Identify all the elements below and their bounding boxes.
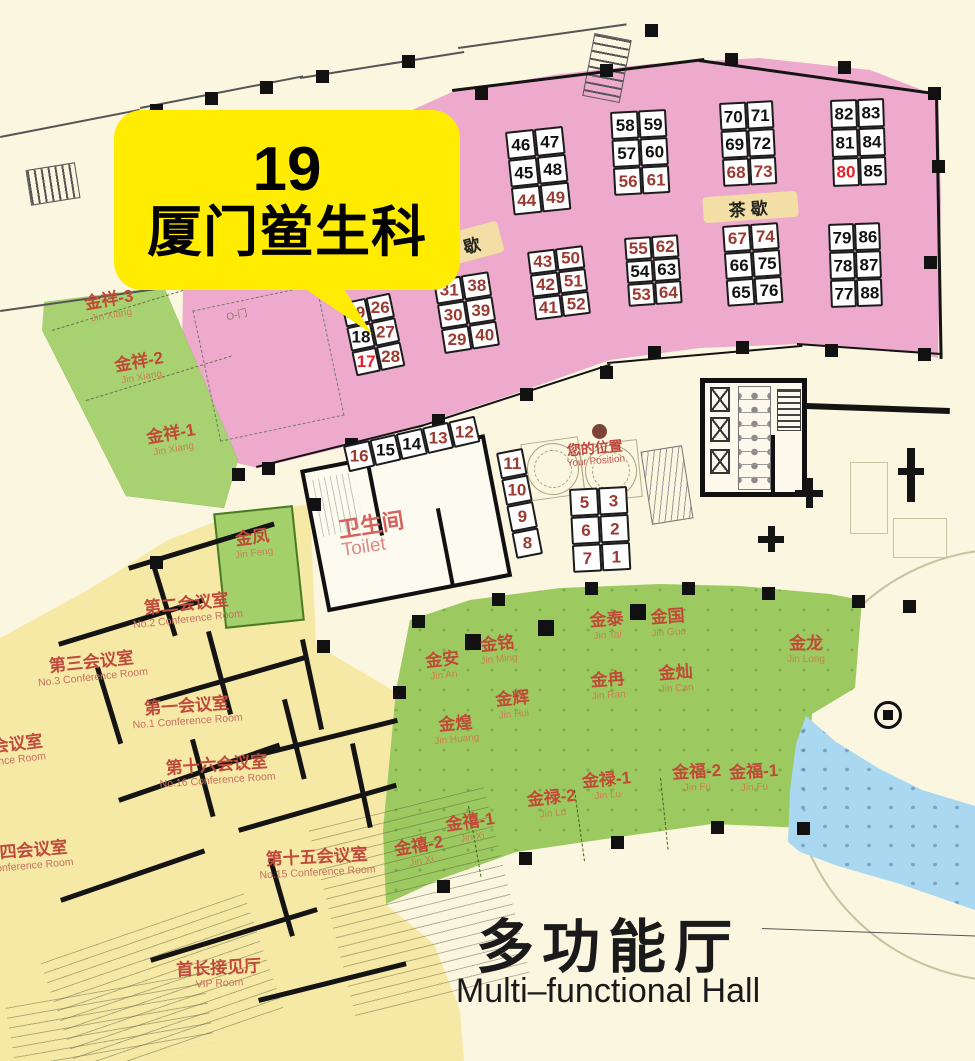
column-marker [711,821,724,834]
wall-segment [607,345,802,364]
callout-exhibitor-name: 厦门鲎生科 [147,202,427,263]
hall-title-en: Multi–functional Hall [456,972,760,1011]
column-marker [317,640,330,653]
booth-2: 2 [599,514,629,543]
room-name-pinyin: Jin Hui [496,707,531,721]
booth-78: 78 [829,251,856,280]
room-label-jin-xiang-1: 金祥-1Jin Xiang [145,421,199,459]
column-marker [611,836,624,849]
column-marker [475,87,488,100]
booth-number: 46 [511,136,530,153]
booth-number: 39 [471,302,490,319]
escalator-icon [640,445,693,525]
room-label-jin-fu-1: 金福-1Jin Fu [729,762,780,794]
booth-number: 3 [608,492,617,509]
room-name-pinyin: Jin Ran [591,689,626,702]
wall-segment [806,403,950,414]
room-name-zh: 金龙 [787,635,825,654]
booth-number: 11 [503,455,521,472]
column-marker [918,348,931,361]
booth-number: 82 [835,106,854,123]
column-marker [648,346,661,359]
column-marker [308,498,321,511]
column-marker [736,341,749,354]
column-marker [402,55,415,68]
elevator-icon [710,449,730,474]
booth-76: 76 [754,276,784,305]
core-wall [771,435,775,495]
elevator-icon [710,417,730,442]
booth-77: 77 [830,279,857,308]
booth-number: 74 [755,228,774,245]
booth-number: 73 [754,162,773,179]
column-marker [538,620,554,636]
booth-number: 15 [376,442,395,459]
column-marker [520,388,533,401]
booth-64: 64 [654,280,683,305]
column-marker [262,462,275,475]
conference-label-onference-room: 四会议室onference Room [0,837,74,875]
room-label-jin-lu-2: 金禄-2Jin Lu [526,787,578,822]
booth-number: 27 [376,323,395,340]
wall-segment [762,928,975,936]
room-name-zh: 金福-1 [729,762,779,783]
room-label-jin-long: 金龙Jin Long [787,635,825,665]
booth-52: 52 [560,291,591,317]
booth-61: 61 [641,165,670,194]
booth-60: 60 [639,137,668,166]
conference-label-no-15-conference-room: 第十五会议室No.15 Conference Room [258,844,376,881]
booth-number: 41 [538,299,557,316]
booth-number: 72 [752,134,771,151]
booth-57: 57 [611,138,640,167]
booth-number: 54 [630,263,649,280]
booth-number: 65 [731,284,750,301]
booth-87: 87 [855,250,882,279]
column-marker [316,70,329,83]
booth-number: 58 [615,117,634,134]
booth-number: 16 [350,448,369,465]
room-label-jin-ming: 金铭Jin Ming [478,633,518,666]
conference-label-no-3-conference-room: 第三会议室No.3 Conference Room [36,647,149,689]
column-marker [393,686,406,699]
wall-segment [418,364,611,428]
booth-86: 86 [854,222,881,251]
room-label-jin-hui: 金辉Jin Hui [495,689,531,722]
conference-label-no-16-conference-room: 第十六会议室No.16 Conference Room [158,751,276,790]
booth-number: 9 [517,508,526,525]
dashed-partition [660,778,669,850]
column-marker [437,880,450,893]
room-label-jin-can: 金灿Jin Can [658,663,694,695]
booth-63: 63 [653,257,682,282]
booth-number: 88 [860,284,879,301]
booth-68: 68 [722,158,750,187]
booth-number: 5 [579,494,588,511]
booth-callout: 19 厦门鲎生科 [114,110,460,290]
booth-48: 48 [537,154,569,185]
booth-56: 56 [613,166,642,195]
wall-segment [452,58,704,92]
floorplan-map: O-门 卫生间 Toilet 茶歇 茶歇 您的位置 Your Position [0,0,975,1061]
stairs-icon [777,389,801,431]
room-name-zh: 金泰 [589,610,624,631]
booth-80: 80 [832,157,860,187]
toilet-block: 卫生间 Toilet [300,434,512,612]
structure-outline [893,518,947,558]
booth-number: 43 [533,253,552,270]
conference-label-vip-room: 首长接见厅VIP Room [176,956,263,991]
booth-number: 61 [646,171,665,188]
plaza-arc-outline [790,548,975,982]
booth-number: 70 [724,108,743,125]
booth-number: 30 [443,306,462,323]
room-label-jin-an: 金安Jin An [425,649,462,682]
room-name-pinyin: Jin Long [787,654,825,665]
booth-number: 78 [833,257,852,274]
column-marker [600,366,613,379]
room-label-jin-ran: 金冉Jin Ran [590,670,626,702]
toilet-label: 卫生间 Toilet [337,508,409,561]
your-position-dot [592,424,607,439]
booth-7: 7 [572,543,602,572]
booth-number: 66 [729,257,748,274]
booth-59: 59 [638,109,667,138]
booth-number: 63 [657,261,676,278]
room-label-jin-huang: 金煌Jin Huang [432,713,479,746]
booth-85: 85 [859,156,887,186]
wall-segment [935,95,943,359]
booth-29: 29 [441,325,473,354]
column-marker [600,64,613,77]
booth-number: 69 [725,136,744,153]
booth-number: 28 [381,348,400,365]
column-marker [150,556,163,569]
wall-segment [350,743,373,828]
elevator-icon [710,387,730,412]
booth-number: 45 [514,164,533,181]
booth-number: 75 [757,255,776,272]
conference-label-ence-room: 会议室ence Room [0,731,47,768]
booth-number: 47 [540,133,559,150]
booth-83: 83 [857,98,885,128]
booth-number: 60 [645,143,664,160]
booth-number: 6 [581,522,590,539]
booth-number: 68 [727,164,746,181]
room-name-zh: 金灿 [658,663,693,684]
booth-number: 42 [536,276,555,293]
wall-segment [140,75,303,109]
booth-82: 82 [830,99,858,129]
booth-number: 10 [508,482,527,499]
wall-segment [282,699,307,780]
booth-number: 49 [546,189,565,206]
booth-67: 67 [722,224,752,253]
room-label-jin-xiang-2: 金祥-2Jin Xiang [113,349,167,387]
booth-75: 75 [752,249,782,278]
column-marker [852,595,865,608]
booth-number: 87 [859,256,878,273]
column-marker [519,852,532,865]
callout-booth-number: 19 [253,137,322,202]
booth-number: 71 [751,106,770,123]
conference-label-no-1-conference-room: 第一会议室No.1 Conference Room [131,693,243,732]
tea-break-band: 茶歇 [702,191,799,224]
room-name-pinyin: Jin Guo [651,626,686,639]
elevator-core-block [700,378,807,497]
booth-number: 56 [618,173,637,190]
column-marker [928,87,941,100]
booth-number: 50 [561,250,580,267]
room-label-jin-xiang-3: 金祥-3Jin Xiang [83,287,137,325]
booth-number: 18 [352,329,371,346]
column-marker [645,24,658,37]
booth-number: 64 [659,284,678,301]
booth-number: 67 [727,230,746,247]
booth-number: 12 [455,423,474,440]
booth-44: 44 [511,185,543,216]
booth-71: 71 [746,100,774,129]
booth-number: 83 [862,105,881,122]
booth-number: 2 [610,520,619,537]
compass-target-icon [874,701,902,729]
booth-number: 44 [517,192,536,209]
column-marker [492,593,505,606]
toilet-wall [436,508,455,585]
booth-number: 51 [563,273,582,290]
booth-number: 62 [656,238,675,255]
column-marker [585,582,598,595]
your-position-label: 您的位置 Your Position [565,438,626,471]
room-name-zh: 金冉 [590,670,625,691]
booth-number: 86 [858,228,877,245]
booth-41: 41 [533,294,564,320]
booth-3: 3 [598,486,628,515]
booth-65: 65 [726,278,756,307]
booth-46: 46 [505,129,537,160]
booth-81: 81 [831,128,859,158]
booth-number: 17 [357,353,376,370]
booth-number: 40 [475,327,494,344]
booth-88: 88 [856,278,883,307]
booth-number: 1 [611,548,620,565]
room-label-jin-lu-1: 金禄-1Jin Lu [581,769,633,803]
booth-number: 7 [582,550,591,567]
booth-number: 76 [759,282,778,299]
booth-28: 28 [376,342,406,372]
column-marker [903,600,916,613]
booth-84: 84 [858,127,886,157]
structure-outline [850,462,888,534]
room-label-jin-guo: 金国Jin Guo [650,607,686,639]
booth-73: 73 [749,156,777,185]
booth-number: 38 [467,277,486,294]
room-name-pinyin: Jin Can [659,682,694,695]
room-label-jin-tai: 金泰Jin Tai [589,610,625,642]
booth-62: 62 [651,234,680,259]
column-marker [682,582,695,595]
wall-segment [768,526,775,552]
lobby-decor-strip [738,386,771,490]
booth-69: 69 [720,130,748,159]
booth-58: 58 [610,111,639,140]
column-marker [825,344,838,357]
booth-54: 54 [626,259,655,284]
room-label-jin-feng: 金凤Jin Feng [232,527,274,561]
booth-70: 70 [719,102,747,131]
booth-55: 55 [624,236,653,261]
booth-number: 48 [543,161,562,178]
column-marker [762,587,775,600]
room-name-zh: 金福-2 [672,762,722,783]
room-label-jin-fu-2: 金福-2Jin Fu [672,762,723,794]
booth-74: 74 [750,222,780,251]
column-marker [797,822,810,835]
column-marker [412,615,425,628]
booth-number: 85 [864,163,883,180]
column-marker [205,92,218,105]
wall-segment [907,448,915,502]
booth-8: 8 [511,527,543,559]
booth-45: 45 [508,157,540,188]
room-name-pinyin: Jin Tai [590,629,625,642]
column-marker [260,81,273,94]
booth-number: 55 [629,240,648,257]
wall-segment [806,478,813,508]
booth-number: 84 [863,134,882,151]
booth-number: 81 [836,135,855,152]
wall-segment [60,849,205,903]
booth-66: 66 [724,251,754,280]
stairs-icon [25,162,80,205]
booth-number: 8 [523,535,532,552]
booth-number: 79 [832,229,851,246]
column-marker [932,160,945,173]
booth-number: 13 [429,429,448,446]
booth-number: 52 [566,295,585,312]
booth-number: 29 [447,331,466,348]
storage-room-outline [192,284,344,441]
booth-72: 72 [747,128,775,157]
column-marker [725,53,738,66]
booth-number: 14 [402,435,421,452]
column-marker [924,256,937,269]
booth-49: 49 [540,182,572,213]
booth-79: 79 [828,223,855,252]
column-marker [838,61,851,74]
booth-number: 59 [643,115,662,132]
column-marker [630,604,646,620]
booth-53: 53 [627,282,656,307]
booth-47: 47 [534,126,566,157]
booth-number: 26 [371,299,390,316]
room-name-zh: 金国 [650,607,686,628]
booth-number: 57 [617,145,636,162]
booth-number: 80 [837,163,856,180]
booth-number: 53 [632,286,651,303]
booth-40: 40 [468,321,500,350]
column-marker [232,468,245,481]
booth-5: 5 [569,487,599,516]
booth-6: 6 [570,515,600,544]
booth-1: 1 [601,542,631,571]
booth-number: 77 [834,285,853,302]
